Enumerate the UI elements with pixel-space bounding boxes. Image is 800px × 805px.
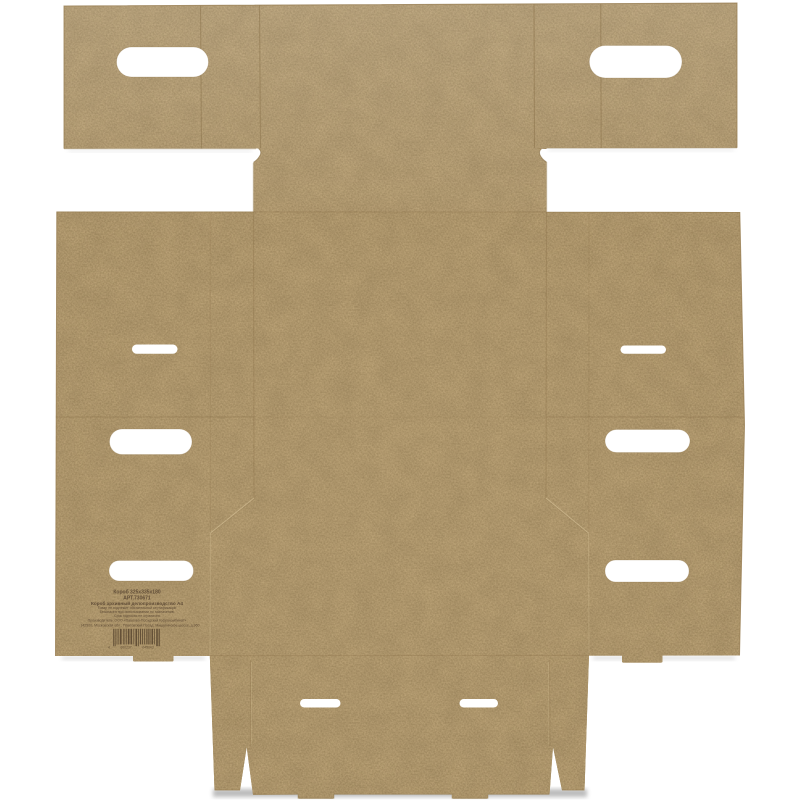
svg-text:660237: 660237 [120, 646, 131, 650]
svg-text:Короб архивный делопроизводств: Короб архивный делопроизводство А4 [91, 600, 183, 606]
svg-text:045043: 045043 [142, 646, 153, 650]
svg-text:Производитель: ООО «Павлово-По: Производитель: ООО «Павлово-Посадский го… [88, 618, 187, 622]
svg-text:142500, Московская обл., Павло: 142500, Московская обл., Павловский Поса… [80, 623, 199, 627]
svg-text:Срок годности не ограничен: Срок годности не ограничен [114, 614, 160, 618]
svg-text:4: 4 [108, 646, 110, 650]
svg-text:Короб 325х335х180: Короб 325х335х180 [113, 588, 160, 595]
